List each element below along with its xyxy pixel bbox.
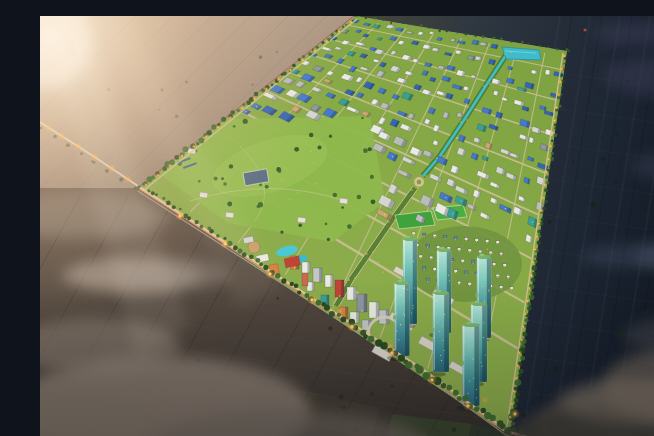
antenna-light xyxy=(582,27,587,32)
aerial-city-render: dusk aerial view of a rectangular master… xyxy=(40,16,654,436)
antenna-light xyxy=(584,29,586,31)
vignette xyxy=(40,16,654,436)
scene-svg xyxy=(40,16,654,436)
